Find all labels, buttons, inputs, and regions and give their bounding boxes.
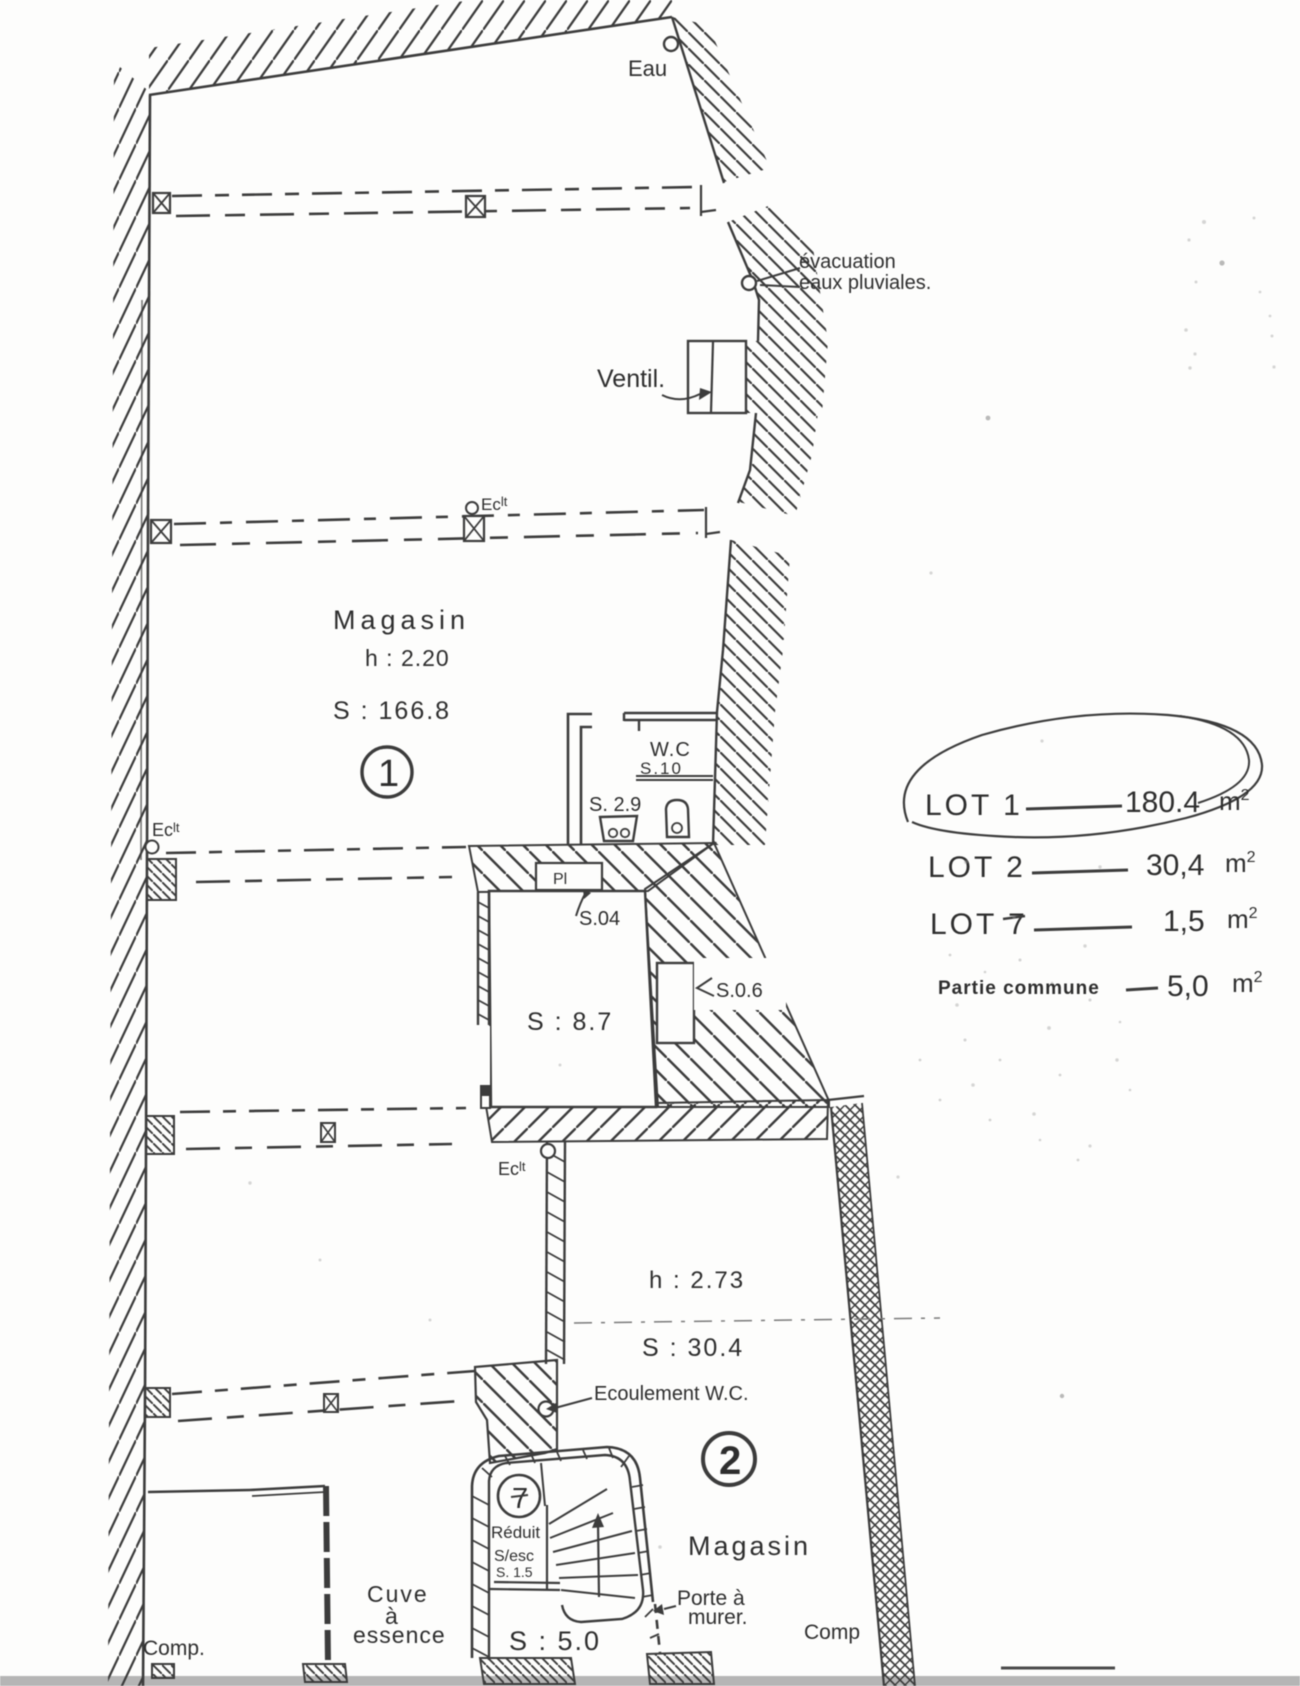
svg-text:Comp.: Comp. (143, 1637, 205, 1660)
svg-text:S.0.6: S.0.6 (716, 980, 763, 1002)
svg-text:LOT 2: LOT 2 (928, 851, 1026, 884)
svg-text:1: 1 (378, 753, 399, 795)
svg-text:essence: essence (353, 1622, 446, 1648)
svg-text:W.C: W.C (650, 739, 691, 761)
svg-text:Ventil.: Ventil. (597, 365, 665, 393)
svg-text:S. 2.9: S. 2.9 (589, 794, 641, 816)
svg-text:h : 2.20: h : 2.20 (365, 645, 450, 671)
svg-text:LOT 7: LOT 7 (930, 908, 1028, 941)
svg-text:S : 30.4: S : 30.4 (642, 1334, 744, 1362)
svg-text:30,4: 30,4 (1146, 849, 1204, 882)
svg-text:Comp: Comp (804, 1621, 860, 1644)
svg-text:Partie commune: Partie commune (938, 978, 1100, 999)
svg-text:LOT 1: LOT 1 (925, 789, 1023, 822)
svg-text:Eau: Eau (628, 56, 667, 81)
svg-text:S.04: S.04 (579, 908, 620, 930)
svg-text:évacuation: évacuation (799, 251, 896, 273)
svg-text:1,5: 1,5 (1163, 905, 1205, 938)
svg-text:S : 166.8: S : 166.8 (333, 697, 451, 725)
svg-text:S : 8.7: S : 8.7 (527, 1008, 613, 1036)
svg-text:Cuve: Cuve (367, 1581, 429, 1607)
svg-text:Réduit: Réduit (491, 1523, 540, 1542)
svg-text:Magasin: Magasin (333, 605, 470, 635)
svg-text:Magasin: Magasin (688, 1531, 811, 1561)
svg-text:Pl: Pl (553, 871, 567, 888)
svg-text:7: 7 (512, 1483, 528, 1515)
svg-text:180.4: 180.4 (1125, 786, 1200, 819)
svg-text:Ecoulement W.C.: Ecoulement W.C. (594, 1383, 749, 1405)
svg-text:h : 2.73: h : 2.73 (649, 1267, 745, 1294)
svg-text:5,0: 5,0 (1167, 970, 1209, 1003)
svg-text:murer.: murer. (688, 1606, 748, 1629)
svg-text:eaux pluviales.: eaux pluviales. (799, 272, 931, 294)
svg-text:S. 1.5: S. 1.5 (496, 1564, 533, 1580)
svg-text:2: 2 (719, 1439, 741, 1483)
svg-text:S/esc: S/esc (494, 1548, 534, 1565)
svg-text:S : 5.0: S : 5.0 (509, 1626, 601, 1656)
